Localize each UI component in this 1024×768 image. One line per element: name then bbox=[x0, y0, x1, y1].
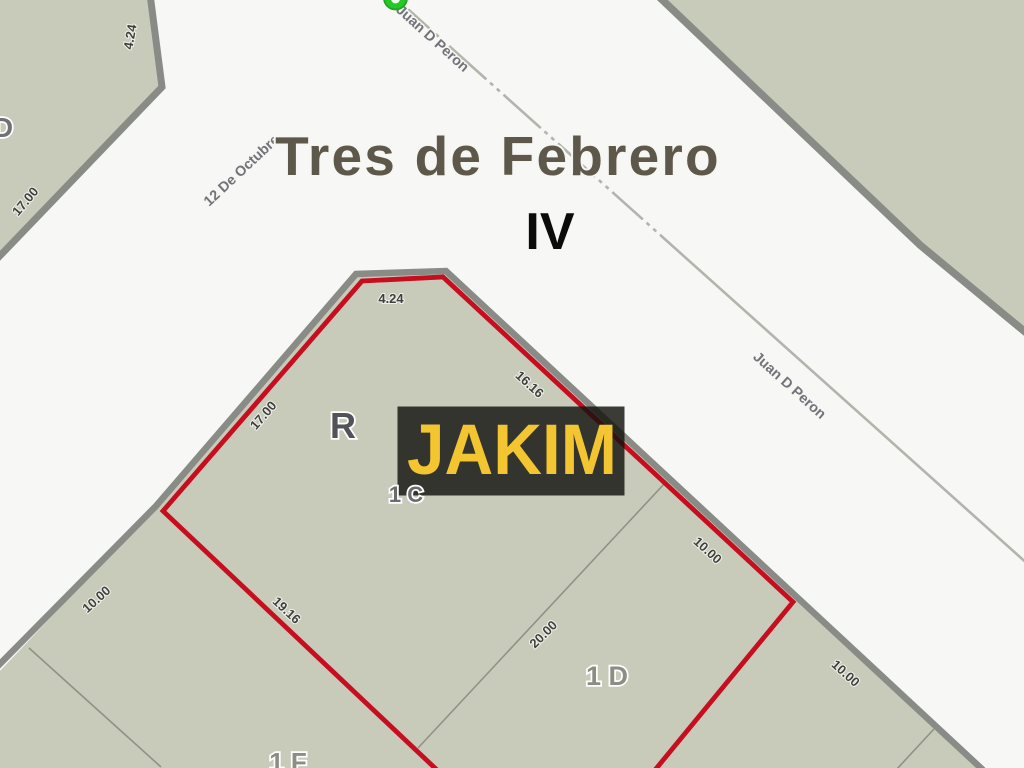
svg-text:Tres de Febrero: Tres de Febrero bbox=[275, 125, 721, 187]
svg-text:4.24: 4.24 bbox=[378, 291, 404, 306]
svg-text:R: R bbox=[330, 405, 356, 446]
svg-text:1 D: 1 D bbox=[586, 661, 628, 691]
svg-text:D: D bbox=[0, 112, 13, 143]
svg-text:1 F: 1 F bbox=[269, 747, 307, 768]
svg-text:JAKIM: JAKIM bbox=[407, 411, 617, 490]
svg-text:IV: IV bbox=[525, 203, 574, 261]
